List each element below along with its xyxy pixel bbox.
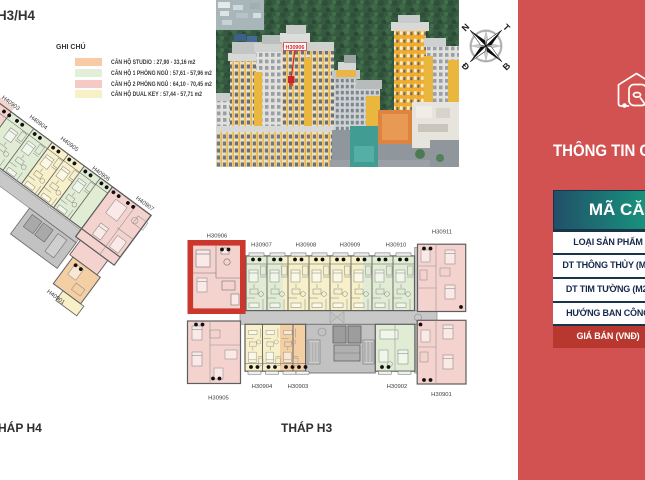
svg-text:H30901: H30901: [431, 392, 452, 398]
svg-text:N: N: [460, 22, 472, 34]
svg-text:H30902: H30902: [387, 384, 408, 390]
svg-text:H30909: H30909: [340, 242, 361, 248]
svg-text:Đ: Đ: [460, 61, 472, 73]
svg-text:T: T: [501, 22, 512, 33]
svg-text:H30906: H30906: [207, 233, 228, 239]
svg-text:H30904: H30904: [252, 384, 273, 390]
svg-text:H30903: H30903: [288, 384, 309, 390]
svg-text:B: B: [501, 60, 513, 72]
svg-text:H30911: H30911: [432, 229, 452, 235]
svg-text:H30906: H30906: [286, 45, 305, 51]
svg-text:H30910: H30910: [386, 242, 407, 248]
svg-text:H30907: H30907: [251, 242, 272, 248]
svg-text:H30908: H30908: [296, 242, 317, 248]
svg-text:H30905: H30905: [208, 396, 229, 402]
